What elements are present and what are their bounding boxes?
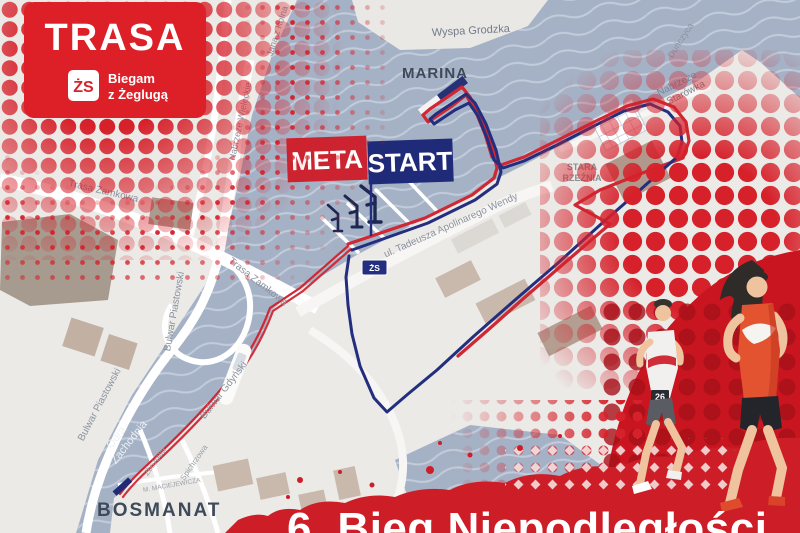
zs-logo-initials: ŻS — [73, 78, 94, 96]
title-box: TRASA ŻS Biegam z Żeglugą — [24, 2, 206, 118]
label-bosmanat: BOSMANAT — [97, 500, 221, 521]
poster-title: TRASA — [45, 17, 186, 59]
event-title: 6. Bieg Niepodległości — [287, 504, 767, 533]
zs-logo-line2: z Żeglugą — [108, 87, 169, 102]
label-marina: MARINA — [402, 65, 468, 82]
map-svg: ŻS Wyspa Grodzka MARINA Duńczyca Nabrzeż… — [0, 0, 800, 533]
race-route-poster: ŻS Wyspa Grodzka MARINA Duńczyca Nabrzeż… — [0, 0, 800, 533]
zs-logo-line1: Biegam — [108, 71, 155, 86]
